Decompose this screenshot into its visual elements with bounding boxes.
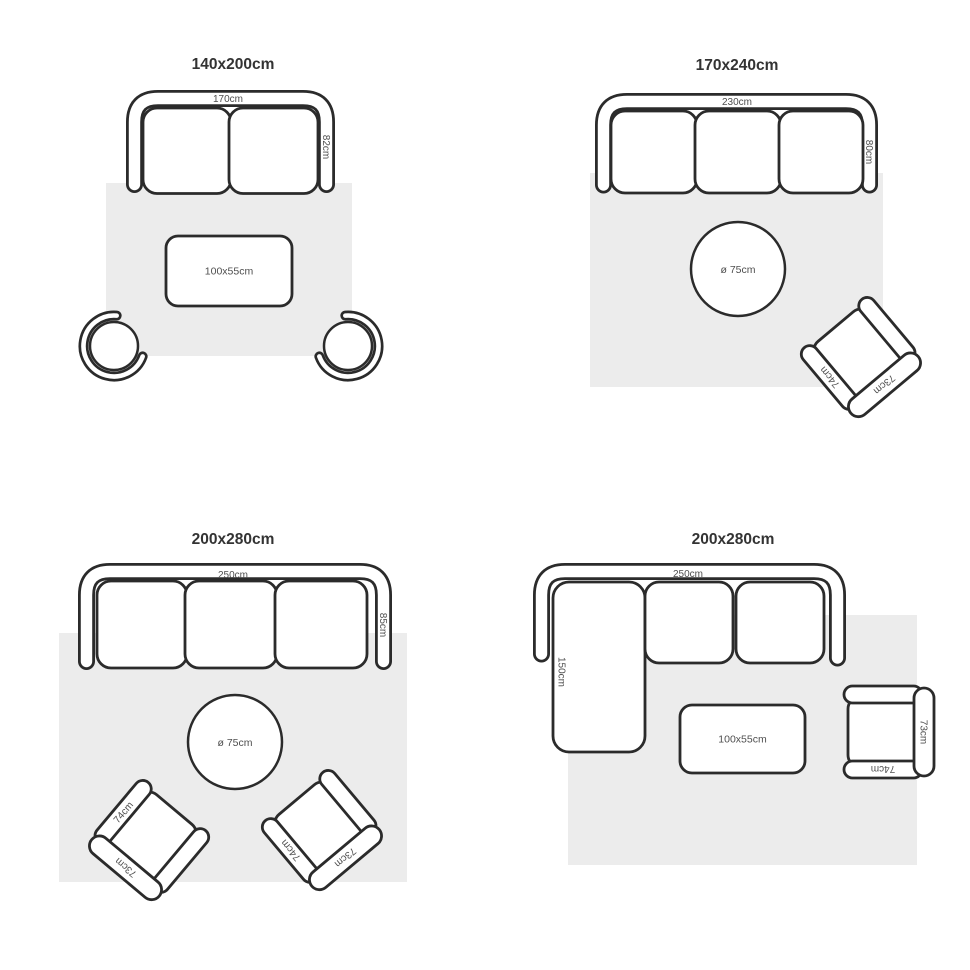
sofa-width-label: 170cm	[213, 94, 243, 105]
layout-200x280-b-canvas: 200x280cm 250cm 150cm 100x55cm	[485, 485, 970, 970]
sofa-width-label: 250cm	[673, 569, 703, 580]
sofa-cushion	[736, 582, 824, 663]
table-size-label: 100x55cm	[205, 266, 254, 278]
sofa-width-label: 250cm	[218, 570, 248, 581]
layout-140x200-canvas: 140x200cm 170cm 82cm 100x55cm	[0, 0, 485, 485]
coffee-table: 100x55cm	[680, 705, 805, 773]
layout-title: 170x240cm	[696, 57, 779, 74]
layout-200x280-a-canvas: 200x280cm 250cm 85cm ø 75cm	[0, 485, 485, 970]
round-table: ø 75cm	[188, 695, 282, 789]
chaise-length-label: 150cm	[556, 657, 567, 687]
sofa-cushion	[695, 111, 781, 193]
sofa-depth-label: 85cm	[377, 613, 388, 637]
sofa-cushion	[229, 108, 318, 194]
table-size-label: ø 75cm	[217, 737, 252, 749]
sofa-three-seat: 250cm 85cm	[87, 570, 389, 668]
layout-title: 140x200cm	[192, 56, 275, 73]
sofa-cushion	[779, 111, 863, 193]
table-size-label: 100x55cm	[718, 734, 767, 746]
layout-140x200: 140x200cm 170cm 82cm 100x55cm	[0, 0, 485, 485]
rug-size-guide: 74cm 73cm 140x200cm 170cm 82cm	[0, 0, 970, 970]
layout-title: 200x280cm	[692, 531, 775, 548]
layout-200x280-a: 200x280cm 250cm 85cm ø 75cm	[0, 485, 485, 970]
sofa-depth-label: 80cm	[863, 140, 874, 164]
layout-170x240-canvas: 170x240cm 230cm 80cm ø 75cm	[485, 0, 970, 485]
sofa-cushion	[611, 111, 697, 193]
sofa-cushion	[645, 582, 733, 663]
sofa-three-seat: 230cm 80cm	[604, 97, 875, 193]
sofa-two-seat: 170cm 82cm	[135, 94, 332, 194]
layout-200x280-b: 200x280cm 250cm 150cm 100x55cm	[485, 485, 970, 970]
layout-170x240: 170x240cm 230cm 80cm ø 75cm	[485, 0, 970, 485]
table-size-label: ø 75cm	[720, 264, 755, 276]
sofa-cushion	[97, 581, 187, 668]
coffee-table: 100x55cm	[166, 236, 292, 306]
sofa-width-label: 230cm	[722, 97, 752, 108]
sofa-cushion	[143, 108, 231, 194]
armchair	[844, 686, 934, 778]
sofa-cushion	[275, 581, 367, 668]
sofa-depth-label: 82cm	[320, 135, 331, 159]
sofa-cushion	[185, 581, 277, 668]
layout-title: 200x280cm	[192, 531, 275, 548]
round-table: ø 75cm	[691, 222, 785, 316]
